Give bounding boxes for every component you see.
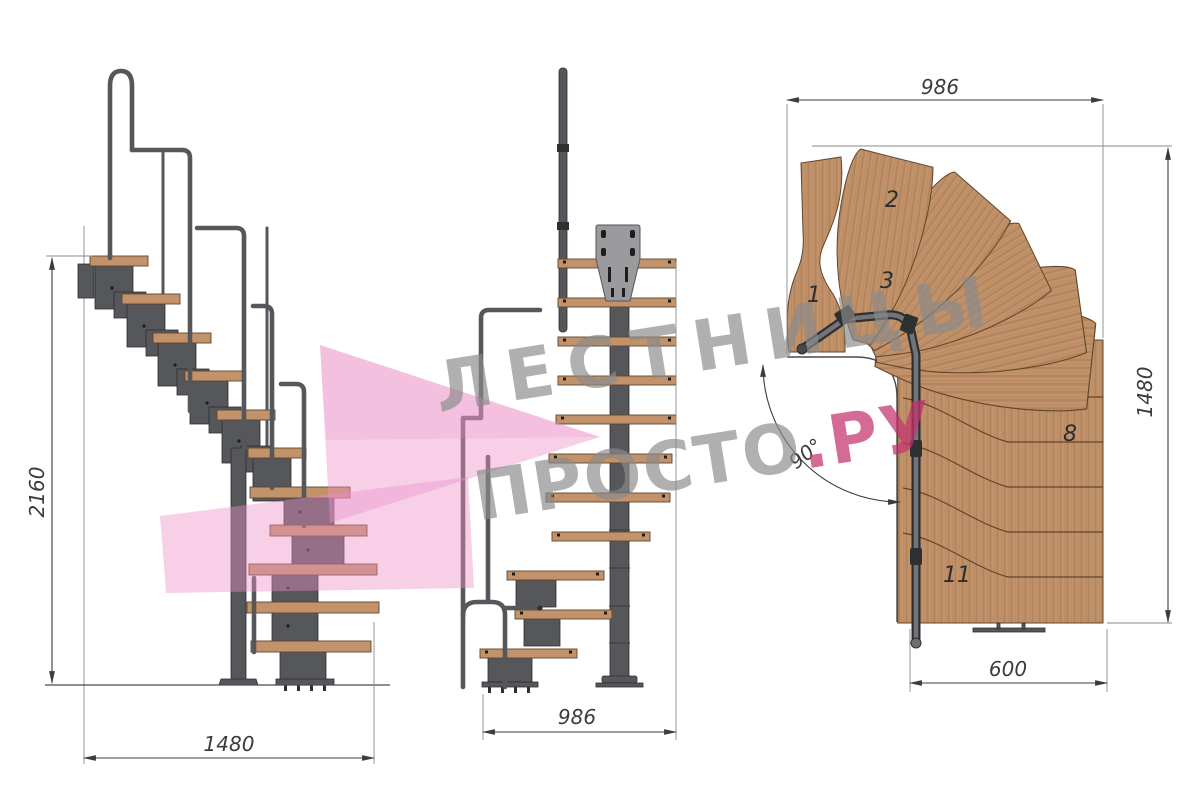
tread-label-11: 11 bbox=[943, 563, 971, 588]
dim-label-600: 600 bbox=[989, 657, 1027, 681]
drawing-canvas: 2160 1480 bbox=[0, 0, 1200, 807]
dim-label-1480-plan: 1480 bbox=[1133, 367, 1157, 418]
dimension-600-plan: 600 bbox=[910, 629, 1107, 692]
wall-bracket bbox=[78, 264, 94, 298]
column-foot bbox=[596, 683, 643, 687]
plan-view: 1 2 3 8 11 986 1480 600 90° bbox=[763, 75, 1172, 692]
plan-base-foot bbox=[973, 623, 1045, 632]
tread-label-8: 8 bbox=[1063, 422, 1077, 447]
front-lower-modules bbox=[482, 580, 560, 693]
dimension-2160: 2160 bbox=[25, 256, 92, 683]
dim-label-2160: 2160 bbox=[25, 467, 49, 518]
staircase-drawing: 2160 1480 bbox=[0, 0, 1200, 807]
dim-label-986-plan: 986 bbox=[921, 75, 959, 99]
dim-label-986-front: 986 bbox=[558, 705, 596, 729]
pole-base-flange bbox=[219, 679, 258, 685]
dim-label-1480: 1480 bbox=[204, 732, 255, 756]
rail-pole-front bbox=[559, 68, 567, 332]
handrail-loop bbox=[110, 71, 132, 258]
tread-label-2: 2 bbox=[885, 188, 899, 213]
column-base bbox=[602, 676, 637, 683]
mounting-plate bbox=[596, 225, 640, 301]
